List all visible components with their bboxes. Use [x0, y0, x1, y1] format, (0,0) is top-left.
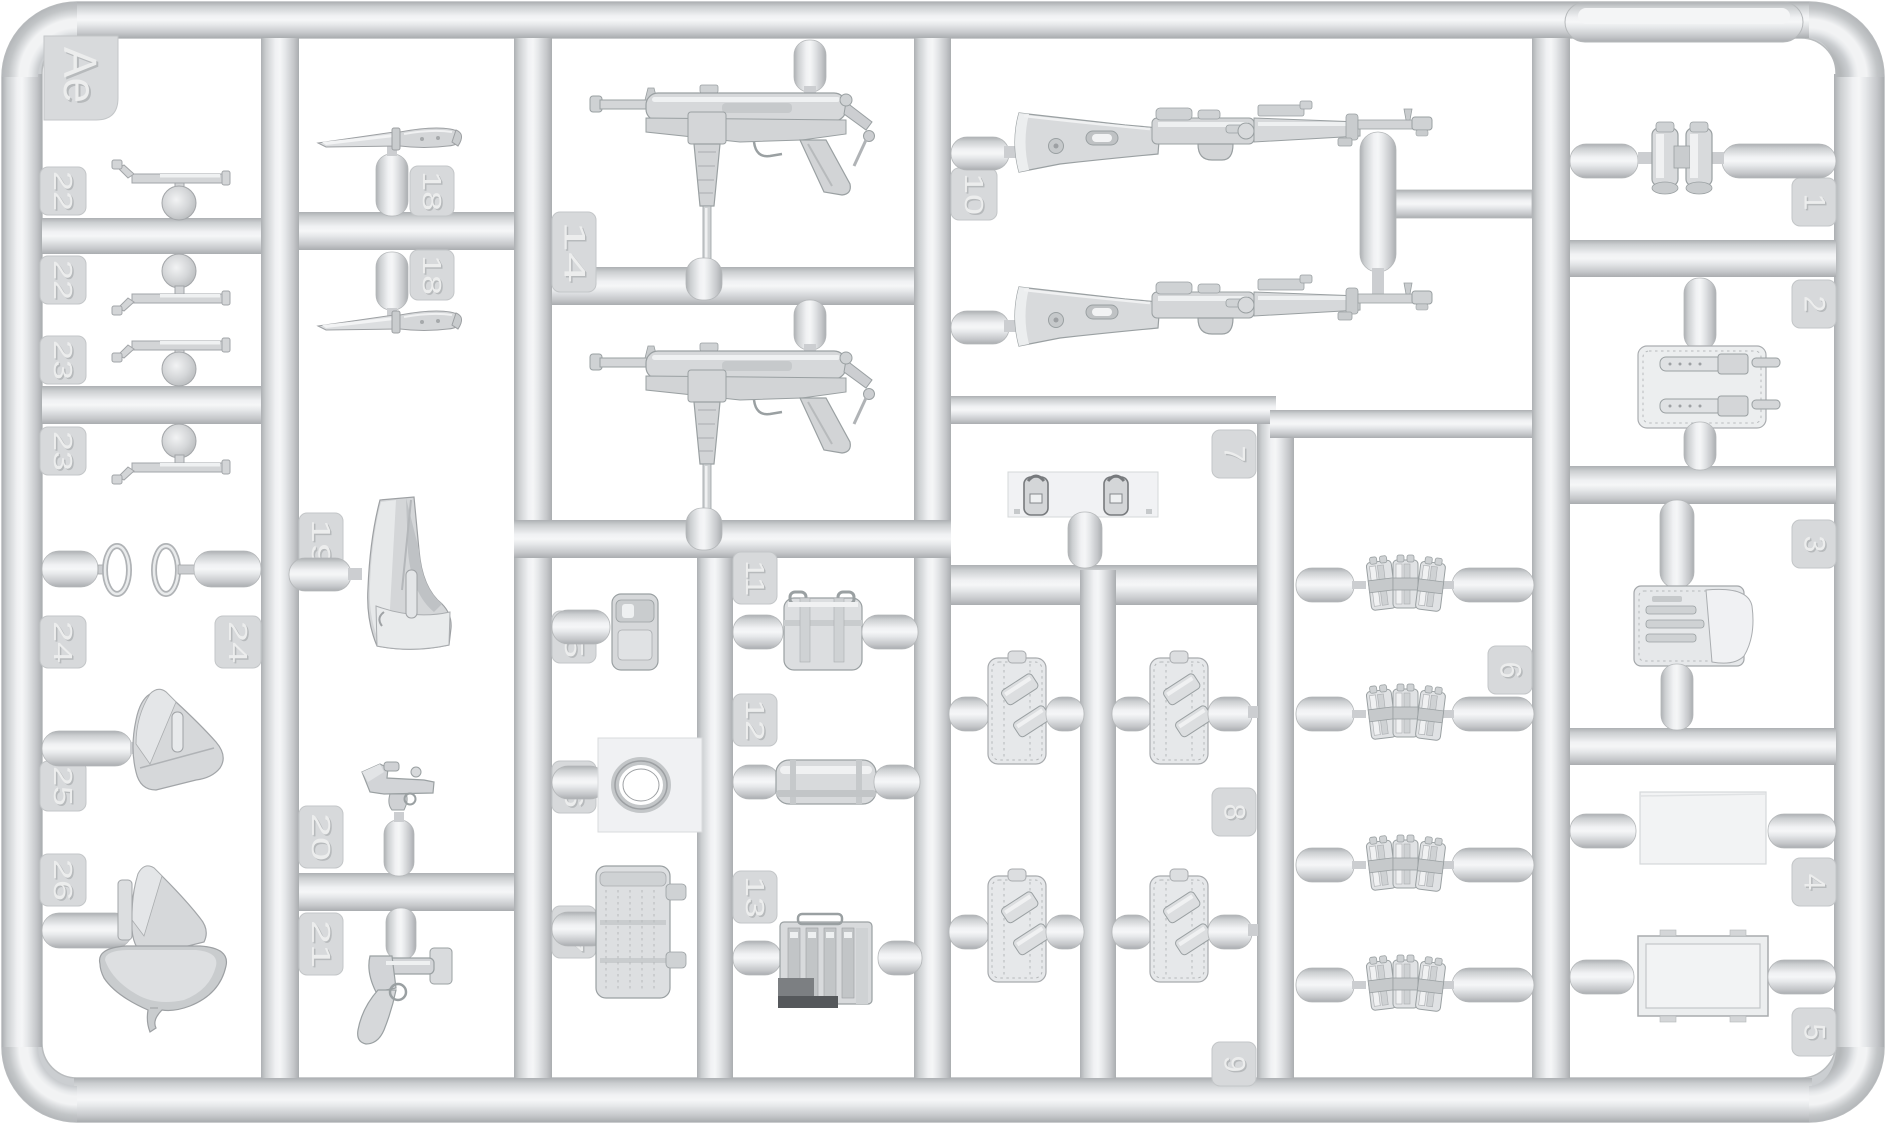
svg-text:14: 14	[558, 221, 591, 283]
svg-text:23: 23	[48, 431, 78, 471]
svg-text:24: 24	[223, 621, 253, 663]
svg-text:3: 3	[1798, 536, 1831, 553]
svg-text:22: 22	[48, 171, 78, 211]
svg-text:1: 1	[1798, 194, 1831, 211]
svg-text:4: 4	[1798, 874, 1831, 891]
svg-text:26: 26	[48, 859, 78, 901]
svg-text:Ae: Ae	[54, 47, 106, 103]
svg-text:20: 20	[306, 813, 336, 861]
svg-text:9: 9	[1218, 1056, 1251, 1073]
svg-text:6: 6	[1494, 662, 1527, 679]
svg-text:10: 10	[959, 173, 989, 215]
svg-text:23: 23	[48, 340, 78, 380]
svg-text:24: 24	[48, 621, 78, 663]
svg-text:18: 18	[417, 171, 447, 211]
svg-text:21: 21	[306, 920, 336, 968]
svg-text:25: 25	[48, 766, 78, 806]
svg-text:2: 2	[1798, 296, 1831, 313]
svg-text:13: 13	[740, 876, 770, 918]
svg-text:11: 11	[740, 560, 770, 596]
svg-text:12: 12	[740, 699, 770, 741]
svg-text:8: 8	[1218, 804, 1251, 821]
svg-text:5: 5	[1798, 1024, 1831, 1041]
svg-text:22: 22	[48, 260, 78, 300]
svg-text:7: 7	[1218, 446, 1251, 463]
svg-text:18: 18	[417, 255, 447, 295]
